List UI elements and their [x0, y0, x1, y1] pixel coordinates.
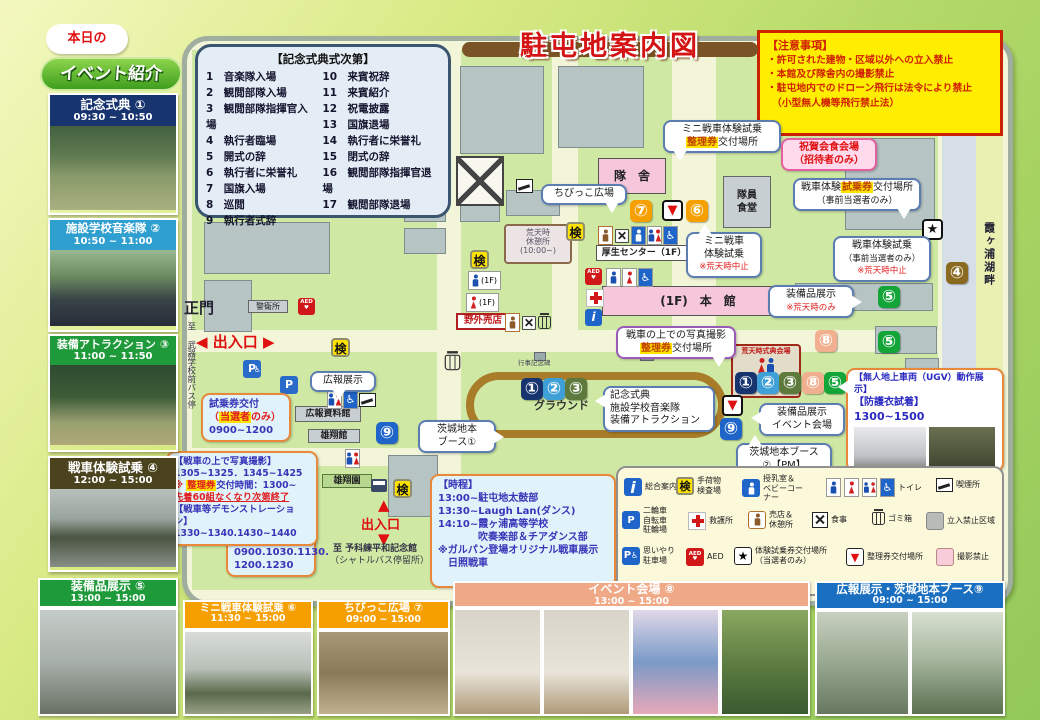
legend-info: i総合案内 [624, 478, 677, 496]
aed-icon-gate: AED♥ [298, 298, 315, 315]
event-card-3-photo [50, 365, 176, 445]
bicycle-parking-icon: P [622, 511, 640, 529]
badge-5b: ⑤ [878, 331, 900, 353]
event-card-3: 装備アトラクション ③11:00 ~ 11:50 [48, 334, 178, 452]
bottom-photo-6 [183, 630, 313, 716]
badge-9b: ⑨ [720, 418, 742, 440]
shared-toilet-icon [862, 478, 877, 497]
building-yushokan: 雄翔館 [308, 429, 360, 443]
building-yushoen: 雄翔園 [322, 474, 372, 488]
baggage-check-icon-3: 検 [331, 338, 350, 357]
bottom-header-7: ちびっこ広場 ⑦09:00 ~ 15:00 [317, 600, 450, 630]
callout-mini-tank-exp: ミニ戦車体験試乗※荒天時中止 [686, 232, 762, 278]
map-title: 駐屯地案内図 [462, 24, 758, 63]
callout-chibikko: ちびっこ広場 [541, 184, 627, 205]
building-4 [204, 222, 330, 274]
callout-equip-venue: 装備品展示イベント会場 [759, 403, 845, 436]
legend-baggage-check: 検手荷物 検査場 [676, 476, 721, 495]
trash-icon [872, 512, 885, 525]
bottom-photo-8d [720, 608, 810, 716]
yushokan-toilet-icon [345, 449, 360, 468]
info-icon: i [624, 478, 642, 496]
legend-no-photo: 撮影禁止 [936, 548, 989, 566]
legend-first-aid: 救護所 [688, 512, 733, 530]
tank-photo-box: 【戦車の上で写真撮影】 1305~1325．1345~1425 ※ 整理券交付時… [166, 451, 318, 546]
building-honkan: (1F) 本 館 [602, 286, 794, 316]
notice-box: 【注意事項】 ・許可された建物・区域以外への立入禁止 ・本館及び隊舎内の撮影禁止… [757, 30, 1003, 136]
badge-7: ⑦ [630, 200, 652, 222]
building-kosei-center: 厚生センター（1F） [596, 245, 692, 261]
callout-ground-events: 記念式典施設学校音楽隊装備アトラクション [603, 386, 715, 432]
event-card-4: 戦車体験試乗 ④12:00 ~ 15:00 [48, 456, 178, 572]
schedule-box: 【時程】 13:00~駐屯地太鼓部 13:30~Laugh Lan(ダンス) 1… [430, 474, 616, 588]
storm-venue-label: 荒天時式典会場 [733, 346, 799, 356]
building-2 [558, 66, 644, 148]
building-keiei: 警衛所 [248, 300, 288, 313]
seiriken-marker-1: ▼ [662, 200, 683, 221]
ground-label: グラウンド [534, 400, 589, 413]
no-photo-swatch [936, 548, 954, 566]
nursing-room-icon [742, 479, 760, 497]
shop-icon [748, 511, 766, 529]
ceremony-items-left: 1 音楽隊入場 2 観閲部隊入場 3 観閲部隊指揮官入場 4 執行者臨場 5 開… [206, 69, 316, 229]
right-arrow-icon: ▶ [263, 333, 275, 351]
notice-lines: ・許可された建物・区域以外への立入禁止 ・本館及び隊舎内の撮影禁止 ・駐屯地内で… [767, 54, 993, 111]
today-bubble: 本日の [46, 24, 128, 54]
badge-1-ground: ① [521, 378, 543, 400]
bottom-header-8: イベント会場 ⑧13:00 ~ 15:00 [453, 581, 810, 608]
badge-3-ground: ③ [565, 378, 587, 400]
accessible-parking-icon: P♿ [622, 547, 640, 565]
event-card-1-header: 記念式典 ①09:30 ~ 10:50 [50, 95, 176, 126]
parking-bicycle-icon: P [280, 376, 298, 394]
callout-equip-storm: 装備品展示※荒天時のみ [768, 285, 854, 318]
badge-6: ⑥ [686, 200, 708, 222]
exit-label-1: ◀ 出入口 ▶ [196, 331, 275, 352]
building-yagai-baiten: 野外売店 [456, 313, 510, 330]
badge-5a: ⑤ [878, 286, 900, 308]
aed-icon-honkan: AED♥ [585, 268, 602, 285]
ceremony-items-right: 10 来賓祝辞 11 来賓紹介 12 祝電披露 13 国旗退場 14 執行者に栄… [322, 69, 440, 229]
baggage-check-icon-4: 検 [393, 479, 412, 498]
legend-accessible-parking: P♿思いやり 駐車場 [622, 546, 675, 565]
legend-star-marker: ★体験試乗券交付場所 （当選者のみ） [734, 546, 827, 565]
aed-icon: AED♥ [686, 548, 704, 566]
monument-label: 行事記念碑 [518, 360, 551, 367]
trash-icon-ground [446, 354, 459, 373]
callout-mini-tank-ticket: ミニ戦車体験試乗整理券交付場所 [663, 120, 781, 153]
bottom-photo-8a [453, 608, 542, 716]
first-aid-icon-honkan [586, 289, 604, 307]
event-card-4-photo [50, 489, 176, 567]
up-arrow-icon: ▲ [378, 496, 390, 514]
food-icon [812, 512, 828, 528]
event-card-3-header: 装備アトラクション ③11:00 ~ 11:50 [50, 336, 176, 365]
building-storm-rest: 荒天時 休憩所 (10:00~) [504, 224, 572, 264]
baggage-check-icon-2: 検 [470, 250, 489, 269]
badge-1-storm: ① [735, 372, 757, 394]
bottom-header-6: ミニ戦車体験試乗 ⑥11:30 ~ 15:00 [183, 600, 313, 630]
toilet-icon-honkan: ♿ [606, 268, 653, 287]
legend-trash: ゴミ箱 [872, 512, 912, 525]
shuttle-label-1: 至 予科練平和記念館 [333, 544, 417, 554]
event-card-1: 記念式典 ①09:30 ~ 10:50 [48, 93, 178, 215]
legend-nursing: 授乳室＆ ベビーコー ナー [742, 474, 803, 503]
ceremony-title: 【記念式典式次第】 [206, 51, 440, 67]
badge-8a: ⑧ [815, 330, 837, 352]
badge-2-storm: ② [757, 372, 779, 394]
event-card-4-header: 戦車体験試乗 ④12:00 ~ 15:00 [50, 458, 176, 489]
badge-8b: ⑧ [802, 372, 824, 394]
callout-tank-ticket: 戦車体験試乗券交付場所（事前当選者のみ） [793, 178, 921, 211]
parking-accessible-icon: P♿ [243, 360, 261, 378]
badge-9a: ⑨ [376, 422, 398, 444]
legend-seiriken-marker: ▼整理券交付場所 [846, 548, 923, 566]
event-card-1-photo [50, 126, 176, 210]
badge-4: ④ [946, 262, 968, 284]
badge-2-ground: ② [543, 378, 565, 400]
event-card-2-photo [50, 250, 176, 326]
left-arrow-icon: ◀ [196, 333, 208, 351]
legend-smoking: 喫煙所 [936, 478, 980, 492]
star-marker-icon: ★ [734, 547, 752, 565]
legend-food: 食事 [812, 512, 847, 528]
bottom-photo-8b [542, 608, 631, 716]
legend-toilet: ♿トイレ [826, 478, 922, 497]
ugv-box: 【無人地上車両（UGV）動作展示】 【防護衣試着】 1300~1500 [846, 368, 1004, 472]
info-icon-honkan: i [585, 309, 602, 326]
legend-no-entry: 立入禁止区域 [926, 512, 995, 530]
smoking-icon-tower [516, 178, 533, 197]
notice-title: 【注意事項】 [767, 37, 993, 53]
legend-shop: 売店＆ 休憩所 [748, 510, 793, 529]
toilet-1f-women: (1F) [466, 293, 499, 312]
callout-koho-exhibit: 広報展示 [310, 371, 376, 392]
training-tower [456, 156, 504, 206]
bus-icon [371, 477, 387, 496]
seiriken-marker-2: ▼ [722, 395, 743, 416]
men-toilet-icon [826, 478, 841, 497]
building-1 [460, 66, 544, 154]
badge-3-storm: ③ [779, 372, 801, 394]
baggage-check-icon: 検 [676, 477, 694, 495]
smoking-icon [936, 478, 953, 492]
callout-ticket-grant: 試乗券交付（当選者のみ）0900~1200 [201, 393, 291, 442]
legend-aed: AED♥AED [686, 548, 724, 566]
seiriken-marker-icon: ▼ [846, 548, 864, 566]
event-card-2-header: 施設学校音楽隊 ②10:50 ~ 11:00 [50, 220, 176, 250]
bottom-photo-8c [631, 608, 720, 716]
poster-canvas: 霞ヶ浦湖畔 ▲N 隊 舎 隊員 食堂 厚生センター（1F） (1F) 本 館 荒… [0, 0, 1040, 720]
yagai-icons [505, 313, 551, 332]
bottom-photo-7 [317, 630, 450, 716]
callout-ibaraki-booth-1: 茨城地本ブース① [418, 420, 496, 453]
lakeside-label: 霞ヶ浦湖畔 [982, 222, 995, 287]
storm-venue-toilet-icon [733, 358, 799, 373]
building-dining-hall: 隊員 食堂 [723, 176, 771, 228]
baggage-check-icon-1: 検 [566, 222, 585, 241]
legend-bicycle-parking: P二輪車 自転車 駐輪場 [622, 506, 667, 535]
callout-photo-ticket: 戦車の上での写真撮影整理券交付場所 [616, 326, 736, 359]
women-toilet-icon [844, 478, 859, 497]
no-entry-swatch [926, 512, 944, 530]
bottom-header-5: 装備品展示 ⑤13:00 ~ 15:00 [38, 578, 178, 608]
bottom-photo-5 [38, 608, 178, 716]
bottom-photo-9b [910, 610, 1005, 716]
first-aid-icon [688, 512, 706, 530]
main-gate-label: 正門 [184, 300, 214, 317]
bottom-photo-9a [815, 610, 910, 716]
toilet-1f-men: (1F) [468, 271, 501, 290]
shuttle-label-2: （シャトルバス停留所） [330, 556, 429, 566]
ceremony-program-box: 【記念式典式次第】 1 音楽隊入場 2 観閲部隊入場 3 観閲部隊指揮官入場 4… [195, 44, 451, 218]
accessible-toilet-icon: ♿ [880, 478, 895, 497]
bottom-header-9: 広報展示・茨城地本ブース⑨09:00 ~ 15:00 [815, 581, 1005, 610]
callout-tank-exp: 戦車体験試乗（事前当選者のみ）※荒天時中止 [833, 236, 931, 282]
event-card-2: 施設学校音楽隊 ②10:50 ~ 11:00 [48, 218, 178, 332]
callout-banquet: 祝賀会食会場（招待者のみ） [781, 138, 877, 171]
bus-stop-left-label: 至 武器学校前バス停 [185, 322, 195, 422]
building-7 [404, 228, 446, 254]
event-intro-heading: イベント紹介 [39, 57, 183, 91]
kosei-icons: ♿ [598, 226, 678, 245]
